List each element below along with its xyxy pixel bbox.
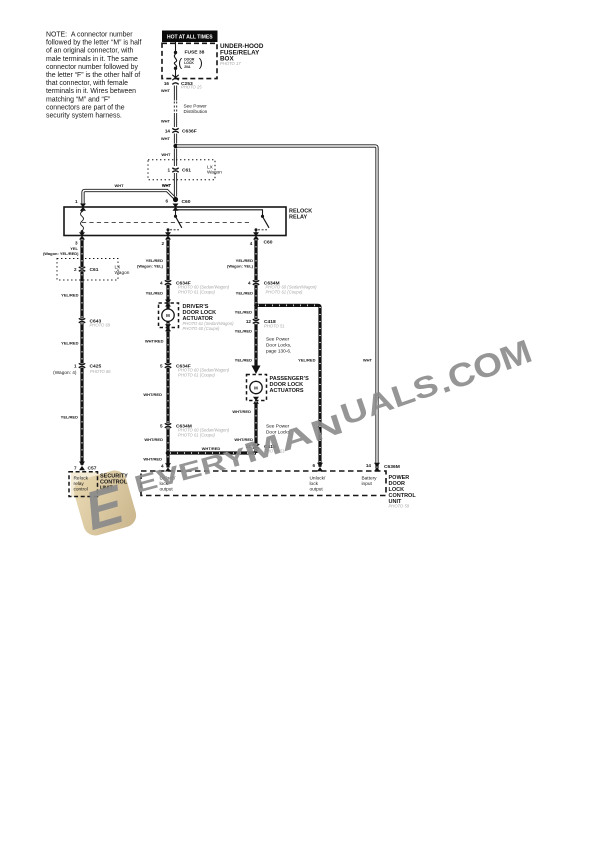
svg-text:WHT: WHT: [161, 118, 171, 123]
svg-text:PHOTO 59: PHOTO 59: [389, 503, 410, 508]
svg-text:LX: LX: [207, 164, 214, 170]
svg-text:WHT: WHT: [161, 88, 171, 93]
svg-text:that connector, with female: that connector, with female: [46, 80, 128, 87]
svg-text:WHT/RED: WHT/RED: [143, 392, 162, 397]
svg-text:Unlock/: Unlock/: [310, 475, 327, 481]
svg-text:14: 14: [366, 463, 372, 468]
svg-text:terminals in it. Wires between: terminals in it. Wires between: [46, 88, 136, 95]
svg-text:security system harness.: security system harness.: [46, 113, 122, 120]
svg-text:Door Locks,: Door Locks,: [266, 342, 291, 348]
svg-text:YEL/RED: YEL/RED: [146, 258, 163, 263]
svg-text:LX: LX: [115, 265, 122, 271]
svg-text:PHOTO 61 (Coupe): PHOTO 61 (Coupe): [178, 433, 216, 438]
svg-text:1: 1: [75, 199, 78, 204]
svg-text:4: 4: [248, 280, 251, 285]
svg-text:(Wagon: YEL/RED): (Wagon: YEL/RED): [43, 251, 79, 256]
svg-text:2: 2: [161, 241, 164, 246]
svg-text:YEL/RED: YEL/RED: [61, 292, 78, 297]
svg-text:PHOTO 25: PHOTO 25: [181, 85, 202, 90]
svg-text:male terminals in it. The same: male terminals in it. The same: [46, 56, 138, 63]
svg-text:YEL/RED: YEL/RED: [236, 258, 253, 263]
svg-text:Battery: Battery: [362, 475, 378, 481]
svg-text:C636F: C636F: [182, 128, 197, 134]
svg-text:(Wagon: YEL): (Wagon: YEL): [227, 263, 254, 268]
svg-text:HOT AT ALL TIMES: HOT AT ALL TIMES: [167, 35, 213, 41]
svg-text:WHT: WHT: [162, 183, 172, 188]
svg-text:(Wagon: YEL): (Wagon: YEL): [137, 263, 164, 268]
svg-text:PHOTO 69: PHOTO 69: [90, 323, 111, 328]
svg-text:PHOTO 61 (Coupe): PHOTO 61 (Coupe): [178, 373, 216, 378]
svg-text:PHOTO 61 (Coupe): PHOTO 61 (Coupe): [266, 290, 304, 295]
svg-text:): ): [199, 56, 203, 70]
svg-text:1: 1: [167, 168, 170, 173]
svg-text:2: 2: [74, 267, 77, 272]
svg-text:C60: C60: [264, 240, 273, 246]
svg-text:12: 12: [246, 319, 252, 324]
svg-text:ACTUATORS: ACTUATORS: [270, 388, 304, 394]
svg-text:input: input: [362, 481, 373, 487]
svg-text:YEL/RED: YEL/RED: [236, 291, 253, 296]
svg-text:Relock: Relock: [74, 476, 89, 482]
svg-text:16: 16: [164, 81, 170, 86]
svg-text:(Wagon: 4): (Wagon: 4): [53, 370, 77, 376]
svg-text:YEL/RED: YEL/RED: [298, 358, 315, 363]
svg-text:WHT: WHT: [161, 136, 171, 141]
svg-text:4: 4: [160, 280, 163, 285]
svg-text:(: (: [178, 56, 182, 70]
svg-text:PHOTO 86: PHOTO 86: [90, 369, 111, 374]
svg-text:NOTE: A connector number: NOTE: A connector number: [46, 32, 133, 39]
svg-text:M: M: [254, 385, 258, 390]
svg-text:6: 6: [312, 463, 315, 468]
svg-text:7: 7: [74, 465, 77, 470]
svg-text:YEL/RED: YEL/RED: [235, 310, 252, 315]
svg-text:output: output: [310, 486, 324, 492]
svg-text:M: M: [166, 313, 170, 318]
svg-text:C60: C60: [182, 199, 191, 205]
svg-text:C636M: C636M: [384, 464, 400, 470]
svg-text:C61: C61: [90, 267, 99, 273]
svg-text:of an original connector, with: of an original connector, with: [46, 48, 134, 55]
svg-text:C61: C61: [182, 168, 191, 174]
svg-text:20A: 20A: [184, 65, 191, 69]
svg-text:See Power: See Power: [266, 336, 290, 342]
svg-text:WHT/RED: WHT/RED: [232, 409, 251, 414]
svg-text:5: 5: [160, 363, 163, 368]
svg-text:lock: lock: [310, 481, 319, 487]
svg-text:1: 1: [74, 363, 77, 368]
svg-text:page 130-6.: page 130-6.: [266, 348, 291, 354]
svg-text:RELAY: RELAY: [289, 215, 307, 221]
svg-text:PHOTO 60 (Coupe): PHOTO 60 (Coupe): [183, 326, 221, 331]
svg-text:Wagon: Wagon: [115, 270, 130, 276]
svg-text:6: 6: [165, 198, 168, 203]
svg-text:See Power: See Power: [184, 103, 208, 109]
svg-text:WHT/RED: WHT/RED: [145, 338, 164, 343]
svg-text:YEL/RED: YEL/RED: [235, 328, 252, 333]
svg-text:4: 4: [250, 241, 253, 246]
svg-text:14: 14: [165, 128, 171, 133]
svg-text:YEL/RED: YEL/RED: [61, 340, 78, 345]
svg-text:matching “M” and “F”: matching “M” and “F”: [46, 96, 111, 103]
svg-text:Wagon: Wagon: [207, 170, 222, 176]
svg-text:YEL/RED: YEL/RED: [61, 415, 78, 420]
svg-text:WHT: WHT: [363, 358, 373, 363]
svg-text:WHT: WHT: [161, 152, 171, 157]
svg-text:the letter “F” is the other ha: the letter “F” is the other half of: [46, 72, 140, 79]
svg-text:3: 3: [75, 240, 78, 245]
svg-text:PHOTO 61 (Coupe): PHOTO 61 (Coupe): [178, 290, 216, 295]
svg-text:YEL/RED: YEL/RED: [235, 357, 252, 362]
svg-text:5: 5: [160, 423, 163, 428]
svg-text:YEL: YEL: [70, 246, 78, 251]
svg-text:WHT/RED: WHT/RED: [143, 457, 162, 462]
svg-text:connectors are part of the: connectors are part of the: [46, 104, 125, 111]
svg-text:followed by the letter “M” is: followed by the letter “M” is half: [46, 40, 141, 47]
svg-text:WHT/RED: WHT/RED: [144, 437, 163, 442]
svg-text:C57: C57: [88, 465, 97, 471]
svg-text:PHOTO 17: PHOTO 17: [220, 61, 241, 66]
svg-text:YEL/RED: YEL/RED: [146, 291, 163, 296]
svg-text:WHT: WHT: [114, 183, 124, 188]
svg-text:PHOTO 51: PHOTO 51: [264, 324, 285, 329]
svg-text:connector number followed by: connector number followed by: [46, 64, 138, 71]
svg-text:Distribution: Distribution: [184, 109, 208, 115]
